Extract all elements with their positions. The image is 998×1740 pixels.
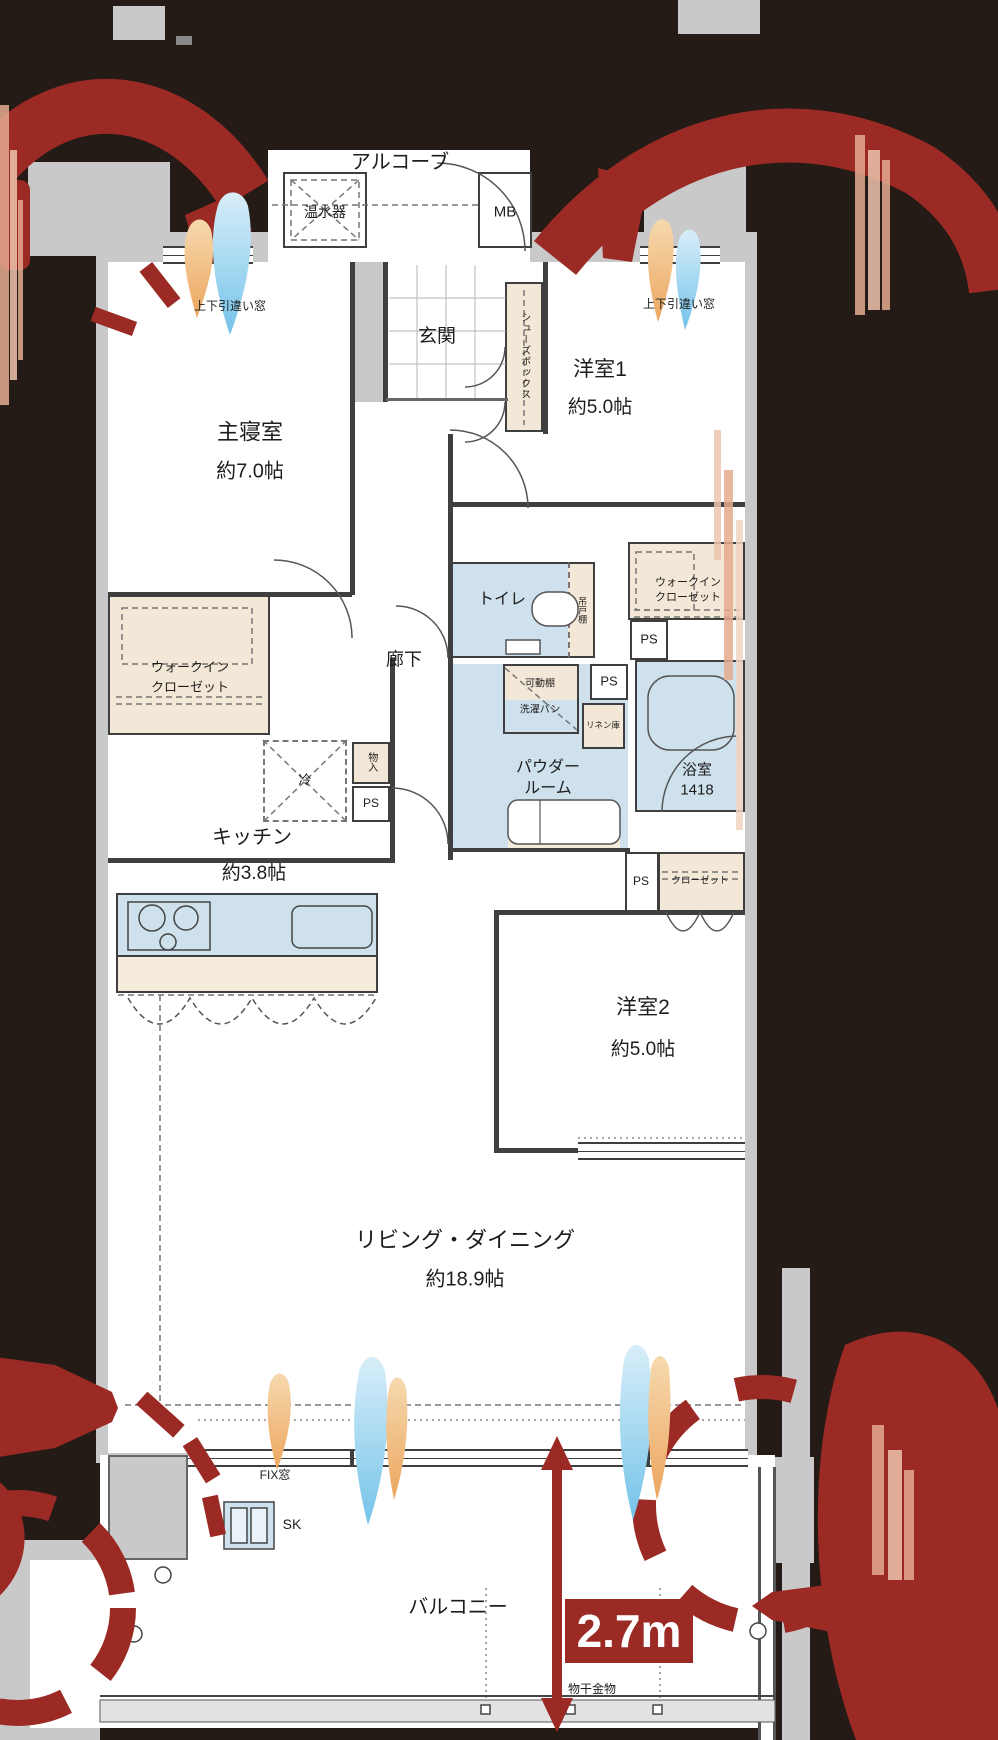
western1-size: 約5.0帖 <box>568 397 632 419</box>
red-airflow-art <box>0 106 998 1740</box>
window-sash-right-label: 上下引違い窓 <box>643 298 715 312</box>
bath-size-label: 1418 <box>680 781 713 798</box>
vanity-sink <box>508 800 620 844</box>
movable-shelf-label: 可動棚 <box>525 678 555 690</box>
shoe-box-label: シューズボックス <box>518 312 530 400</box>
wic-right-label-2: クローゼット <box>655 592 721 605</box>
kitchen-label: キッチン <box>212 827 292 850</box>
master-bedroom-size: 約7.0帖 <box>216 461 284 484</box>
western2-label: 洋室2 <box>616 996 670 1020</box>
master-bedroom-label: 主寝室 <box>217 419 283 444</box>
powder-room-label-1: パウダー <box>516 759 580 777</box>
hanging-shelf-label: 吊戸棚 <box>577 597 587 624</box>
wic-right-label-1: ウォークイン <box>655 577 721 590</box>
balcony-rail <box>100 1449 775 1722</box>
storage-label: 物入 <box>365 752 377 772</box>
entrance-label: 玄関 <box>418 326 456 348</box>
linen-label: リネン庫 <box>586 721 620 731</box>
sk-label: SK <box>283 1516 302 1532</box>
living-dining-label: リビング・ダイニング <box>355 1227 575 1252</box>
toilet-label: トイレ <box>478 591 526 609</box>
kitchen-sink <box>292 906 372 948</box>
wic-left-label-1: ウォークイン <box>151 661 229 676</box>
wic-left-label-2: クローゼット <box>151 681 229 696</box>
bathtub <box>648 676 734 750</box>
western2-size: 約5.0帖 <box>611 1039 675 1061</box>
window-sash-left-label: 上下引違い窓 <box>194 300 266 314</box>
ceiling-height-value: 2.7m <box>577 1604 682 1658</box>
corridor-label: 廊下 <box>386 650 422 671</box>
ps-label-closet-row: PS <box>633 875 649 889</box>
laundry-hardware-label: 物干金物 <box>568 1683 616 1697</box>
water-heater-label: 温水器 <box>304 204 346 220</box>
western1-label: 洋室1 <box>573 358 627 382</box>
kitchen-size: 約3.8帖 <box>222 863 286 885</box>
alcove-label: アルコーブ <box>351 152 449 175</box>
ps-label-kitchen: PS <box>363 797 379 811</box>
plan-artwork <box>0 0 998 1740</box>
bath-label: 浴室 <box>682 761 712 778</box>
meter-box-label: MB <box>494 203 517 220</box>
ps-label-2: PS <box>600 675 617 690</box>
closet-label: クローゼット <box>671 877 728 888</box>
laundry-pan-label: 洗濯パン <box>520 704 561 716</box>
fridge-label: 冷 <box>298 774 311 789</box>
slop-sink <box>224 1502 274 1549</box>
living-dining-size: 約18.9帖 <box>426 1269 505 1292</box>
kitchen-scallop-doors <box>128 998 376 1024</box>
powder-room-label-2: ルーム <box>524 780 572 798</box>
airflow-flames <box>185 192 701 1525</box>
ceiling-height-badge: 2.7m <box>565 1599 693 1663</box>
ps-label-1: PS <box>640 633 657 648</box>
salmon-streaks <box>0 105 914 1580</box>
balcony-label: バルコニー <box>408 1597 508 1620</box>
fix-window-label: FIX窓 <box>260 1469 291 1483</box>
floor-plan-canvas: 2.7m アルコーブ 温水器 MB 上下引違い窓 上下引違い窓 玄関 シューズボ… <box>0 0 998 1740</box>
stove <box>128 902 210 950</box>
